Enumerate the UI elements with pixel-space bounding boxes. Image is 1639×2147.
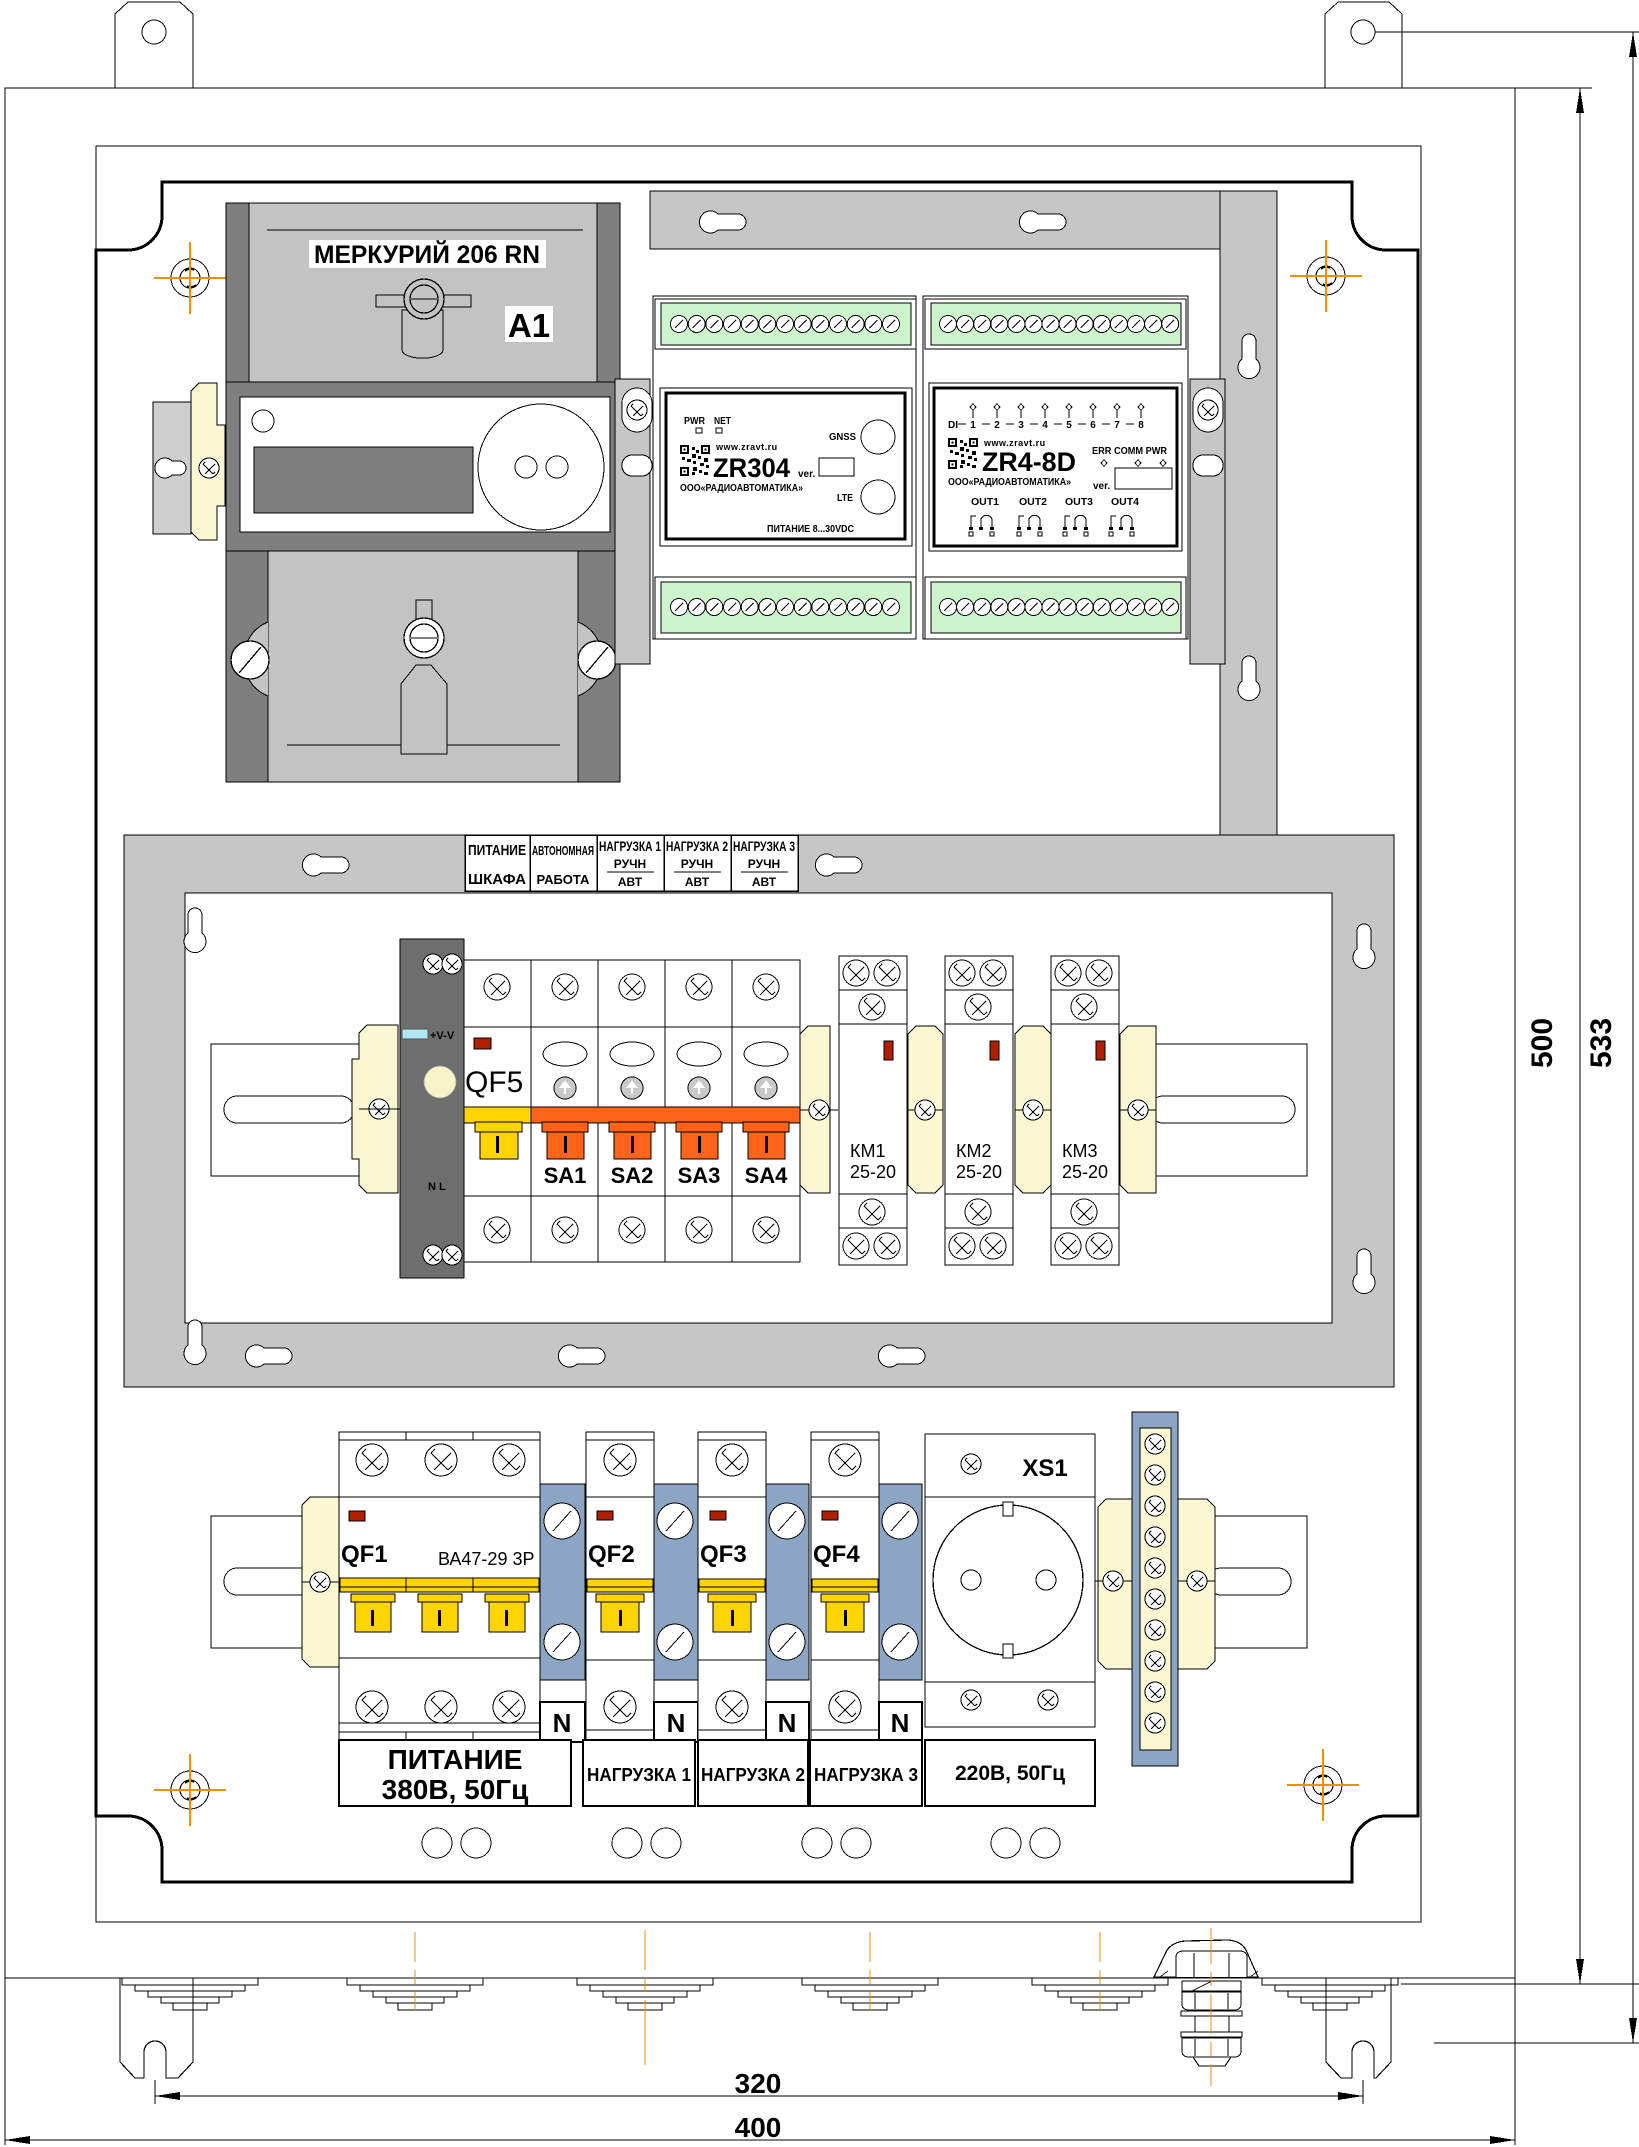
svg-text:SA3: SA3 <box>678 1163 721 1188</box>
svg-text:220В, 50Гц: 220В, 50Гц <box>955 1762 1065 1785</box>
svg-text:GNSS: GNSS <box>829 431 856 443</box>
svg-text:АВТ: АВТ <box>685 875 710 889</box>
svg-text:25-20: 25-20 <box>1062 1162 1108 1182</box>
svg-text:N: N <box>553 1708 572 1738</box>
svg-text:4: 4 <box>1042 420 1048 431</box>
svg-text:АВТ: АВТ <box>618 875 643 889</box>
svg-text:QF4: QF4 <box>813 1541 860 1568</box>
svg-text:НАГРУЗКА 1: НАГРУЗКА 1 <box>587 1765 691 1785</box>
svg-text:ВА47-29 3Р: ВА47-29 3Р <box>438 1549 534 1569</box>
svg-text:+V-V: +V-V <box>430 1030 455 1042</box>
svg-text:КМ3: КМ3 <box>1062 1141 1098 1161</box>
svg-text:РУЧН: РУЧН <box>681 857 713 871</box>
svg-text:ZR304: ZR304 <box>713 453 790 483</box>
svg-text:8: 8 <box>1138 420 1144 431</box>
svg-text:ver.: ver. <box>798 469 815 480</box>
svg-text:ERR COMM PWR: ERR COMM PWR <box>1092 446 1168 457</box>
svg-text:ver.: ver. <box>1093 481 1110 492</box>
svg-text:533: 533 <box>1585 1018 1618 1068</box>
svg-text:5: 5 <box>1066 420 1072 431</box>
svg-text:ZR4-8D: ZR4-8D <box>982 447 1076 477</box>
svg-text:НАГРУЗКА 3: НАГРУЗКА 3 <box>733 838 795 854</box>
svg-text:500: 500 <box>1526 1018 1559 1068</box>
svg-text:N: N <box>667 1708 686 1738</box>
svg-text:ООО«РАДИОАВТОМАТИКА»: ООО«РАДИОАВТОМАТИКА» <box>680 483 803 494</box>
svg-text:OUT1: OUT1 <box>971 496 999 508</box>
svg-text:МЕРКУРИЙ 206 RN: МЕРКУРИЙ 206 RN <box>314 239 540 269</box>
svg-text:www.zravt.ru: www.zravt.ru <box>715 442 778 452</box>
svg-text:OUT4: OUT4 <box>1111 496 1139 508</box>
svg-text:QF1: QF1 <box>341 1541 388 1568</box>
svg-text:ПИТАНИЕ: ПИТАНИЕ <box>388 1744 523 1775</box>
svg-text:SA1: SA1 <box>544 1163 587 1188</box>
svg-text:XS1: XS1 <box>1022 1455 1067 1482</box>
svg-text:N L: N L <box>428 1181 446 1193</box>
svg-text:QF5: QF5 <box>465 1066 523 1099</box>
svg-text:АВТОНОМНАЯ: АВТОНОМНАЯ <box>532 843 594 858</box>
svg-text:2: 2 <box>994 420 1000 431</box>
svg-text:380В, 50Гц: 380В, 50Гц <box>382 1774 529 1805</box>
svg-text:А1: А1 <box>508 307 550 344</box>
svg-text:7: 7 <box>1114 420 1120 431</box>
svg-text:OUT3: OUT3 <box>1065 496 1093 508</box>
svg-text:320: 320 <box>735 2068 782 2099</box>
svg-text:PWR: PWR <box>684 416 706 427</box>
svg-text:25-20: 25-20 <box>850 1162 896 1182</box>
svg-text:QF2: QF2 <box>588 1541 635 1568</box>
svg-text:НАГРУЗКА 3: НАГРУЗКА 3 <box>814 1765 918 1785</box>
svg-text:ООО«РАДИОАВТОМАТИКА»: ООО«РАДИОАВТОМАТИКА» <box>948 477 1071 488</box>
svg-text:ШКАФА: ШКАФА <box>468 871 526 888</box>
svg-text:QF3: QF3 <box>700 1541 747 1568</box>
svg-text:КМ2: КМ2 <box>956 1141 992 1161</box>
svg-text:РАБОТА: РАБОТА <box>537 872 590 887</box>
svg-text:НАГРУЗКА 2: НАГРУЗКА 2 <box>701 1765 805 1785</box>
svg-text:DI: DI <box>948 420 958 431</box>
svg-text:КМ1: КМ1 <box>850 1141 886 1161</box>
svg-text:НАГРУЗКА 2: НАГРУЗКА 2 <box>666 838 728 854</box>
svg-text:НАГРУЗКА 1: НАГРУЗКА 1 <box>599 838 661 854</box>
svg-text:3: 3 <box>1018 420 1024 431</box>
svg-text:ПИТАНИЕ: ПИТАНИЕ <box>468 842 526 859</box>
svg-text:SA4: SA4 <box>745 1163 789 1188</box>
svg-text:РУЧН: РУЧН <box>614 857 646 871</box>
svg-text:OUT2: OUT2 <box>1019 496 1047 508</box>
svg-text:N: N <box>778 1708 797 1738</box>
svg-text:6: 6 <box>1090 420 1096 431</box>
svg-text:25-20: 25-20 <box>956 1162 1002 1182</box>
svg-text:400: 400 <box>735 2112 782 2143</box>
svg-text:LTE: LTE <box>837 492 853 504</box>
svg-text:NET: NET <box>714 416 731 427</box>
svg-text:1: 1 <box>970 420 976 431</box>
svg-text:АВТ: АВТ <box>752 875 777 889</box>
svg-text:РУЧН: РУЧН <box>748 857 780 871</box>
svg-text:SA2: SA2 <box>611 1163 654 1188</box>
svg-text:ПИТАНИЕ 8...30VDC: ПИТАНИЕ 8...30VDC <box>767 523 854 535</box>
svg-text:N: N <box>891 1708 910 1738</box>
